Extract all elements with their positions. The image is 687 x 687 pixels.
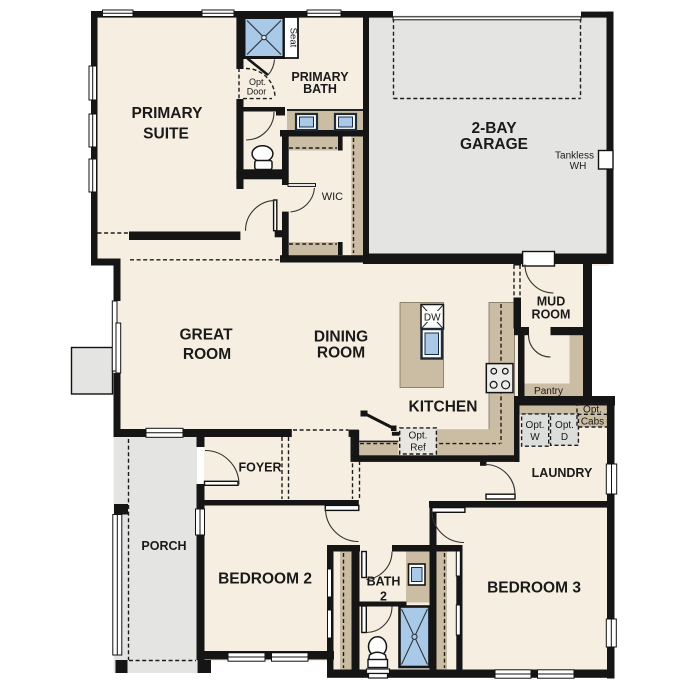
svg-text:GARAGE: GARAGE — [460, 136, 528, 153]
svg-text:PRIMARY: PRIMARY — [132, 105, 204, 122]
svg-text:BEDROOM 3: BEDROOM 3 — [487, 580, 581, 597]
svg-text:MUD: MUD — [537, 295, 565, 309]
svg-text:D: D — [561, 432, 568, 443]
svg-text:Opt.: Opt. — [526, 420, 545, 431]
svg-text:ROOM: ROOM — [183, 346, 231, 363]
svg-text:DINING: DINING — [314, 329, 368, 346]
svg-text:ROOM: ROOM — [532, 308, 571, 322]
svg-text:BATH: BATH — [367, 575, 401, 589]
svg-text:2-BAY: 2-BAY — [471, 120, 517, 137]
svg-text:LAUNDRY: LAUNDRY — [532, 466, 593, 480]
svg-text:PORCH: PORCH — [141, 539, 186, 553]
svg-text:Cabs: Cabs — [581, 417, 604, 428]
svg-text:BATH: BATH — [303, 82, 337, 96]
svg-text:WIC: WIC — [322, 191, 343, 203]
svg-text:WH: WH — [570, 161, 587, 172]
svg-text:ROOM: ROOM — [317, 345, 365, 362]
svg-text:FOYER: FOYER — [238, 461, 281, 475]
svg-text:Door: Door — [247, 87, 267, 97]
svg-text:SUITE: SUITE — [143, 126, 189, 143]
svg-text:Opt.: Opt. — [583, 405, 602, 416]
svg-text:BEDROOM 2: BEDROOM 2 — [218, 571, 312, 588]
svg-text:Opt.: Opt. — [249, 77, 266, 87]
svg-text:DW: DW — [424, 313, 441, 324]
svg-text:KITCHEN: KITCHEN — [409, 399, 478, 416]
svg-text:Seat: Seat — [288, 28, 299, 48]
svg-text:Tankless: Tankless — [555, 151, 594, 162]
svg-text:Opt.: Opt. — [555, 420, 574, 431]
svg-text:Opt.: Opt. — [409, 431, 428, 442]
svg-text:2: 2 — [380, 590, 387, 604]
svg-text:Pantry: Pantry — [534, 386, 563, 397]
svg-text:W: W — [530, 432, 540, 443]
svg-text:Ref: Ref — [410, 443, 426, 454]
svg-text:GREAT: GREAT — [179, 327, 233, 344]
